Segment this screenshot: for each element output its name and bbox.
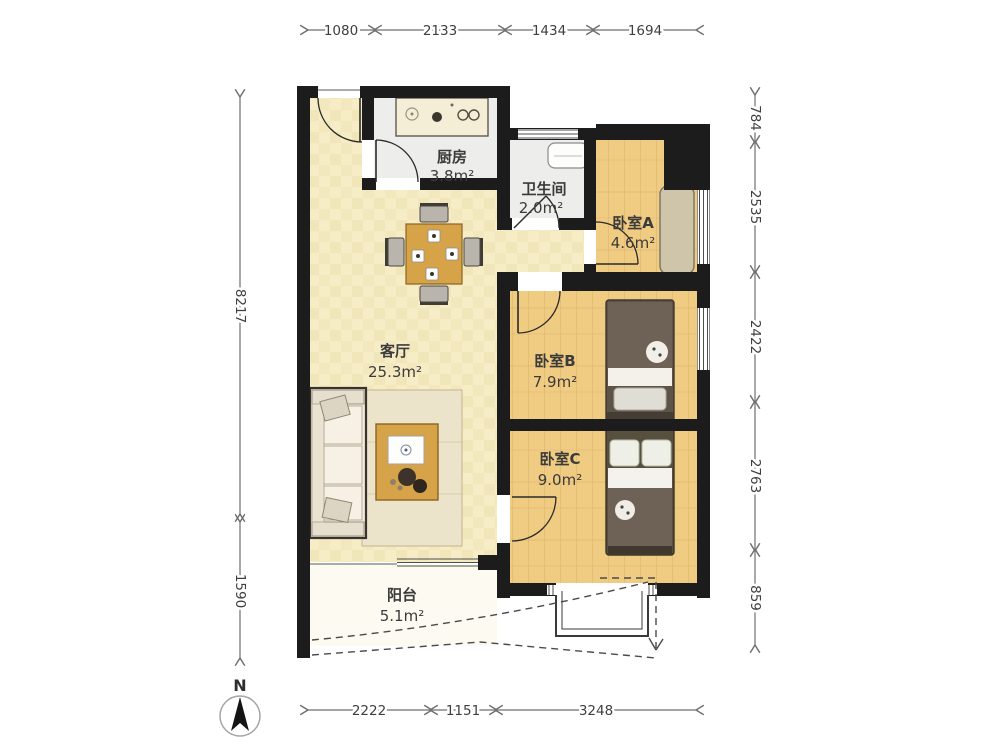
coffee-table — [376, 424, 438, 500]
balcony-label: 阳台 — [387, 586, 417, 604]
bathroom-window — [518, 129, 578, 139]
dim-left-1: 8217 — [232, 289, 248, 323]
balcony-floor — [310, 564, 497, 646]
kitchen-area: 3.8m² — [430, 167, 474, 185]
bedroom-b-label: 卧室B — [534, 352, 575, 370]
dim-bottom-2: 1151 — [446, 703, 480, 719]
bedroom-a-bed — [660, 186, 694, 274]
bedroom-b-bed — [606, 300, 674, 422]
dim-top-3: 1434 — [532, 23, 566, 39]
bedroom-c-bed — [606, 428, 674, 555]
sofa — [310, 388, 366, 538]
bedroom-b-window — [698, 308, 710, 370]
dim-right-4: 2763 — [747, 459, 763, 493]
bedroom-b-area: 7.9m² — [533, 373, 577, 391]
kitchen-counter — [396, 98, 488, 136]
dim-right-1: 784 — [747, 105, 763, 131]
bedroom-c-area: 9.0m² — [538, 471, 582, 489]
dimensions-right: 784 2535 2422 2763 859 — [747, 95, 763, 645]
bathroom-label: 卫生间 — [521, 180, 566, 198]
bedroom-a-area: 4.6m² — [611, 234, 655, 252]
dim-bottom-1: 2222 — [352, 703, 386, 719]
hallway-floor — [497, 230, 584, 272]
bedroom-c-label: 卧室C — [539, 450, 580, 468]
dim-top-2: 2133 — [423, 23, 457, 39]
dim-right-3: 2422 — [747, 320, 763, 354]
dim-bottom-3: 3248 — [579, 703, 613, 719]
bathroom-area: 2.0m² — [519, 199, 563, 217]
kitchen-label: 厨房 — [437, 148, 467, 166]
floor-plan-svg: 厨房 3.8m² 卫生间 2.0m² 卧室A 4.6m² 客厅 25.3m² 卧… — [0, 0, 1000, 750]
bedroom-a-window — [698, 190, 710, 264]
living-area: 25.3m² — [368, 363, 422, 381]
dim-top-4: 1694 — [628, 23, 662, 39]
toilet — [548, 143, 588, 168]
dim-top-1: 1080 — [324, 23, 358, 39]
dim-right-5: 859 — [747, 585, 763, 611]
dimensions-left: 8217 1590 — [232, 97, 248, 658]
north-compass: N — [220, 676, 260, 736]
bedroom-a-label: 卧室A — [612, 214, 654, 232]
dim-right-2: 2535 — [747, 190, 763, 224]
balcony-area: 5.1m² — [380, 607, 424, 625]
floor-plan-page: 厨房 3.8m² 卫生间 2.0m² 卧室A 4.6m² 客厅 25.3m² 卧… — [0, 0, 1000, 750]
dimensions-top: 1080 2133 1434 1694 — [308, 23, 696, 39]
dimensions-bottom: 2222 1151 3248 — [308, 703, 696, 719]
living-label: 客厅 — [379, 342, 410, 360]
dim-left-2: 1590 — [232, 574, 248, 608]
north-label: N — [233, 676, 246, 695]
